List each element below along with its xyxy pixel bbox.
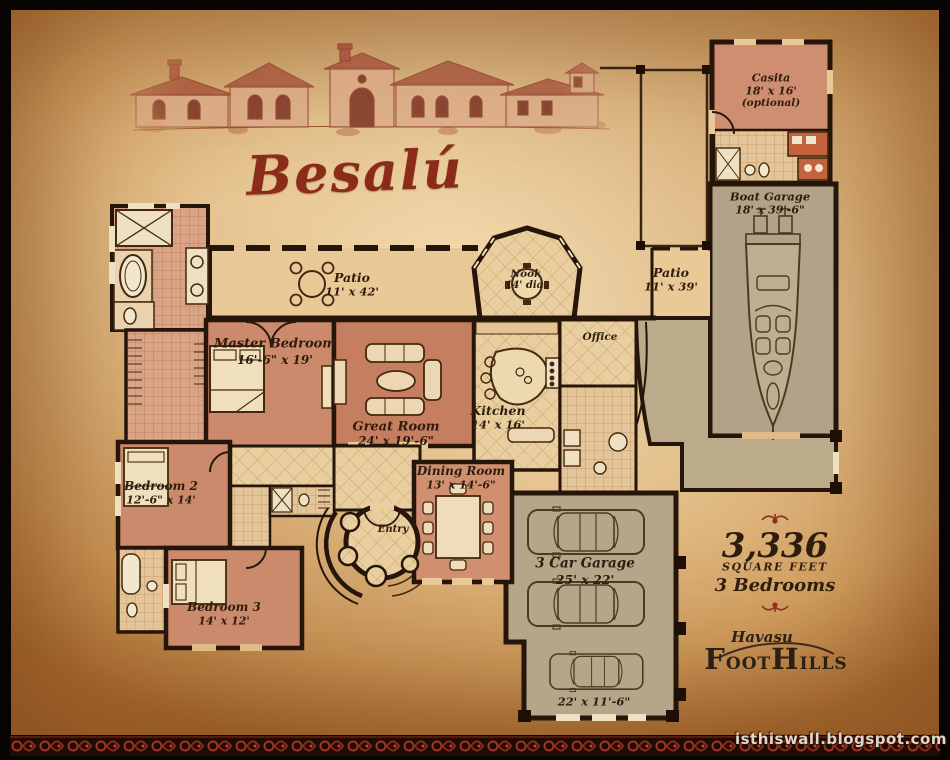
floor-plan [0,0,950,760]
entry-rotunda [317,503,420,604]
patio-areas [210,65,711,318]
master-closets [126,330,210,458]
great-room-room [334,320,474,449]
bath-3 [118,548,166,632]
bedroom-2-room [118,442,230,548]
office-service [560,320,636,492]
bedroom-3-room [166,548,302,651]
dining-room-room [414,462,512,585]
boat-garage-door [742,432,800,439]
nook-bay [474,228,580,318]
master-bath [112,206,208,330]
kitchen-room [474,320,560,470]
framed-floor-plan-poster: Besalú [0,0,950,760]
fleuron-icon [762,514,788,612]
watermark: isthiswall.blogspot.com [735,730,947,748]
casita-room [709,39,833,184]
